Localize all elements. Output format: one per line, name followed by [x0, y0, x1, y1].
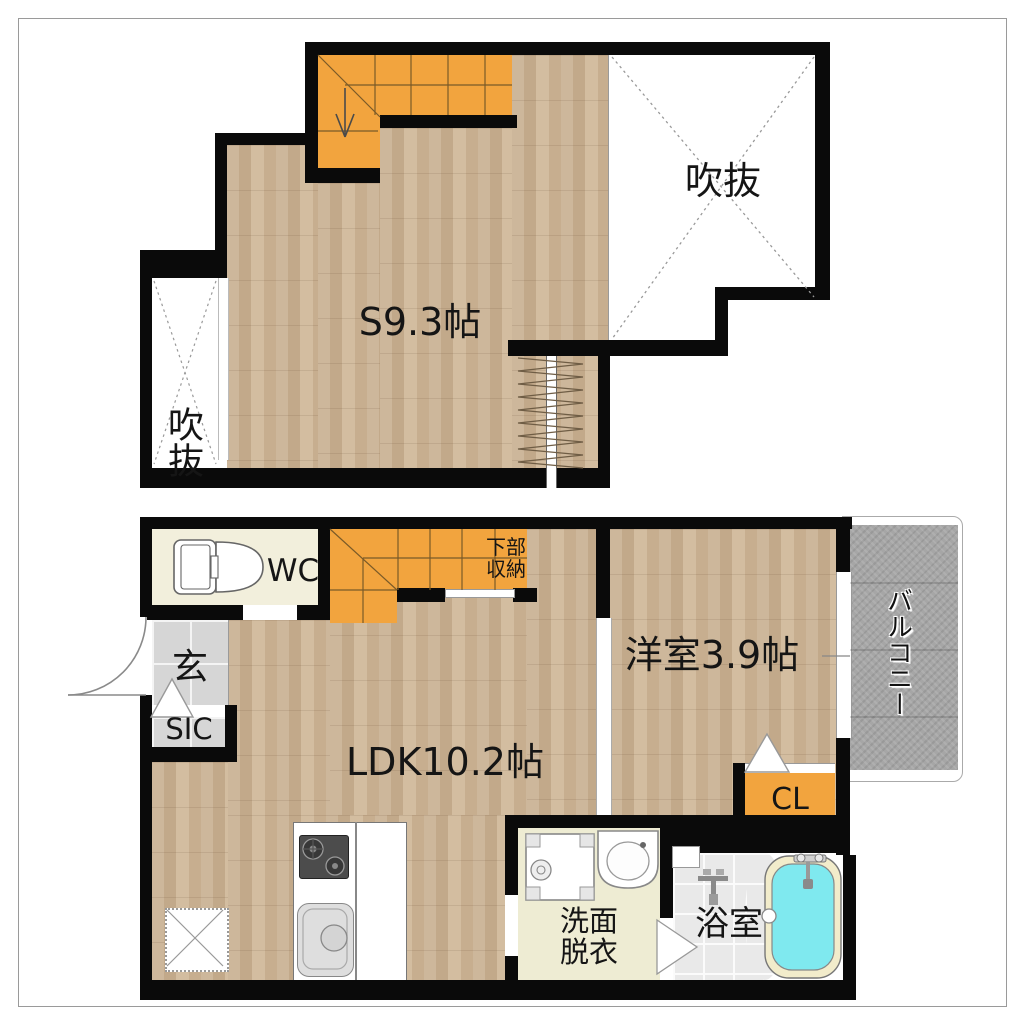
- bath-label: 浴室: [688, 901, 770, 939]
- wall: [140, 980, 856, 1000]
- 2f-void-right: [608, 300, 715, 340]
- wall: [715, 287, 830, 300]
- wall: [147, 605, 243, 620]
- wall: [596, 517, 610, 618]
- refrigerator-space: [165, 908, 229, 972]
- washroom-label: 洗面 脱衣: [539, 906, 639, 968]
- floor-plan-canvas: S9.3帖 吹抜 吹抜 WC 玄 SIC LDK10.2帖 下部 収納 洋室3.…: [0, 0, 1024, 1024]
- wall: [513, 588, 537, 602]
- wall: [843, 855, 856, 980]
- stove-icon: [299, 835, 349, 879]
- wall: [140, 250, 152, 488]
- wc-label: WC: [256, 553, 330, 589]
- 2f-void-right-label: 吹抜: [653, 156, 793, 198]
- entrance-label: 玄: [168, 644, 212, 684]
- sic-label: SIC: [150, 713, 228, 745]
- 1f-ldk-floor: [228, 620, 330, 815]
- wall: [505, 828, 518, 895]
- 1f-stairs: [330, 529, 397, 623]
- wall: [505, 815, 672, 828]
- understair-storage-door: [445, 589, 515, 598]
- wall: [505, 956, 518, 980]
- 2f-stairs: [318, 55, 380, 168]
- wall: [305, 168, 380, 183]
- wall: [140, 747, 237, 762]
- washroom-line2: 脱衣: [539, 937, 639, 968]
- tile-edge-line: [228, 620, 229, 705]
- void-edge-line: [608, 55, 609, 340]
- wall: [140, 517, 852, 529]
- wall: [140, 468, 610, 488]
- bedroom-label: 洋室3.9帖: [582, 629, 842, 673]
- understair-storage-label: 下部 収納: [473, 536, 539, 582]
- kitchen-sink: [297, 903, 354, 977]
- wall: [733, 763, 745, 815]
- wall: [305, 42, 318, 183]
- wall: [305, 42, 830, 55]
- 2f-room-label: S9.3帖: [300, 296, 540, 340]
- wall: [380, 115, 517, 128]
- wall: [508, 340, 728, 356]
- wall: [815, 42, 830, 300]
- wall: [397, 588, 445, 602]
- wall: [660, 828, 673, 918]
- balcony-label: バルコニー: [883, 578, 913, 726]
- understair-storage-line1: 下部: [473, 536, 539, 558]
- wall: [215, 133, 318, 145]
- ldk-label: LDK10.2帖: [305, 736, 585, 780]
- washroom-line1: 洗面: [539, 906, 639, 937]
- 2f-room-floor: [512, 55, 608, 470]
- bath-window: [672, 846, 700, 868]
- kitchen-counter-divider: [355, 822, 357, 982]
- 2f-stair-handrail: [546, 356, 557, 488]
- closet-label: CL: [750, 782, 830, 816]
- wall: [836, 529, 850, 572]
- 2f-void-left-gap: [218, 278, 229, 460]
- wall: [598, 345, 610, 488]
- wall: [140, 250, 227, 278]
- wall: [215, 133, 227, 278]
- understair-storage-line2: 収納: [473, 558, 539, 580]
- wall: [140, 517, 152, 617]
- 2f-void-left-label: 吹抜: [160, 388, 204, 496]
